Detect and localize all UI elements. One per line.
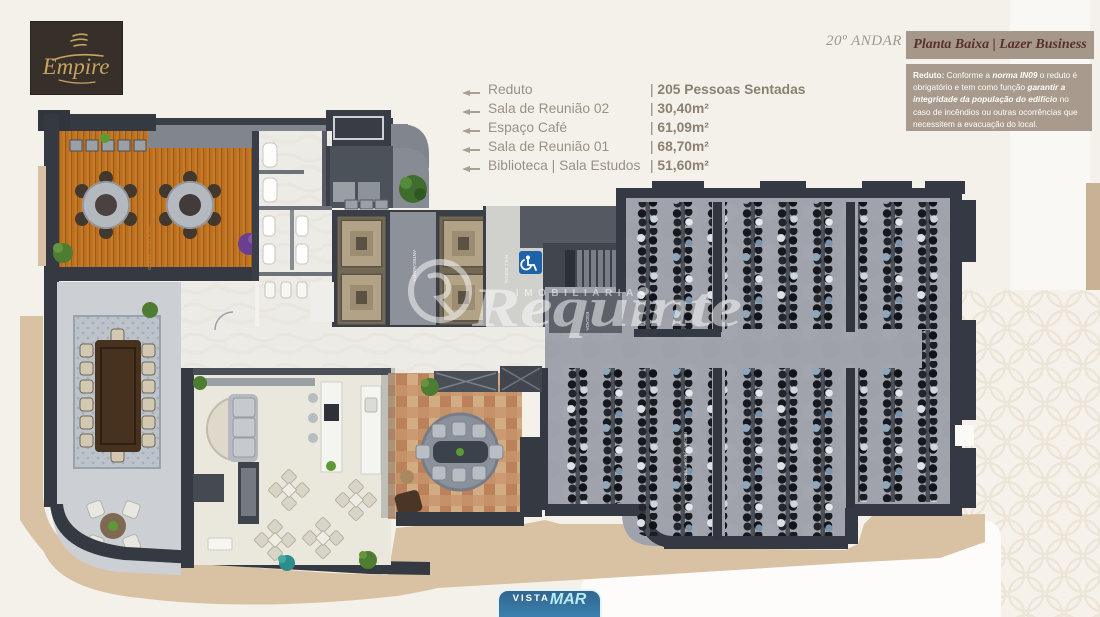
svg-text:Requinte: Requinte — [471, 277, 742, 339]
svg-text:REDUTO | 205 PESSOAS: REDUTO | 205 PESSOAS — [683, 432, 688, 485]
svg-text:DECK DESCOBERTO: DECK DESCOBERTO — [147, 225, 152, 271]
